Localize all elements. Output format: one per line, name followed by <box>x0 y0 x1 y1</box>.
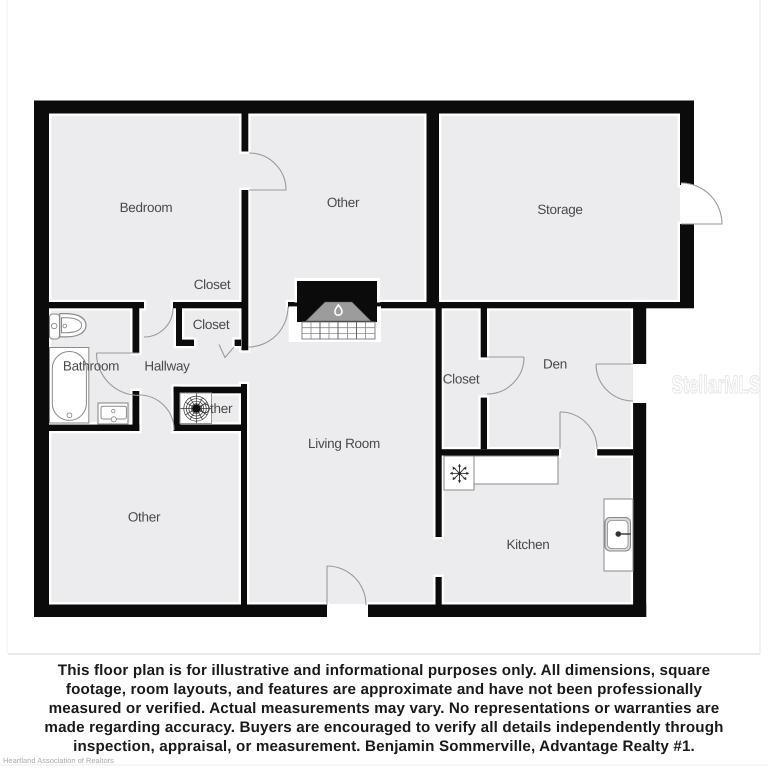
svg-text:Hallway: Hallway <box>144 359 190 374</box>
svg-text:Closet: Closet <box>443 372 480 387</box>
svg-text:Other: Other <box>128 510 161 525</box>
svg-text:Bedroom: Bedroom <box>120 200 173 215</box>
svg-text:inspection, appraisal, or meas: inspection, appraisal, or measurement. B… <box>73 738 695 755</box>
svg-text:made regarding accuracy. Buyer: made regarding accuracy. Buyers are enco… <box>44 719 723 736</box>
svg-text:StellarMLS: StellarMLS <box>672 371 761 399</box>
svg-text:This floor plan is for illustr: This floor plan is for illustrative and … <box>58 662 710 679</box>
svg-text:Den: Den <box>543 357 567 372</box>
svg-text:Living Room: Living Room <box>308 436 380 451</box>
svg-text:measured or verified. Actual m: measured or verified. Actual measurement… <box>49 700 720 717</box>
svg-text:footage, room layouts, and fea: footage, room layouts, and features are … <box>66 681 703 698</box>
svg-text:Closet: Closet <box>194 277 231 292</box>
svg-text:Bathroom: Bathroom <box>63 359 119 374</box>
svg-text:Kitchen: Kitchen <box>506 537 549 552</box>
svg-text:Storage: Storage <box>537 202 582 217</box>
svg-text:Heartland Association of Realt: Heartland Association of Realtors <box>3 756 114 765</box>
svg-text:Other: Other <box>200 401 233 416</box>
svg-text:Closet: Closet <box>193 317 230 332</box>
svg-text:Other: Other <box>327 195 360 210</box>
